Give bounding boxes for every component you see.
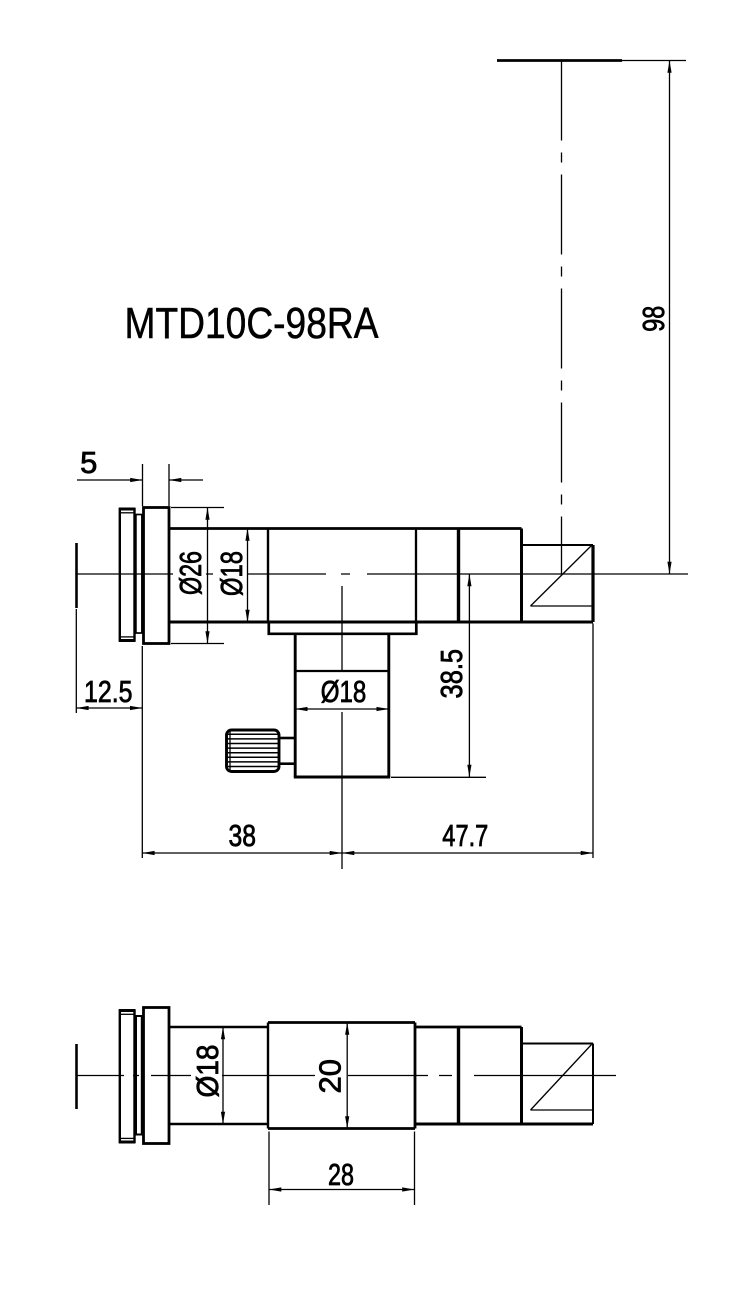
- svg-text:5: 5: [80, 445, 97, 480]
- svg-text:Ø18: Ø18: [321, 674, 367, 709]
- svg-text:47.7: 47.7: [442, 818, 488, 853]
- svg-text:20: 20: [313, 1059, 348, 1093]
- svg-text:28: 28: [328, 1157, 354, 1192]
- svg-text:98: 98: [636, 306, 671, 332]
- svg-text:Ø26: Ø26: [173, 551, 208, 595]
- svg-text:Ø18: Ø18: [214, 551, 249, 596]
- svg-text:38: 38: [228, 818, 256, 853]
- svg-text:MTD10C-98RA: MTD10C-98RA: [125, 299, 380, 348]
- svg-text:12.5: 12.5: [84, 674, 133, 709]
- svg-text:38.5: 38.5: [434, 649, 469, 699]
- svg-text:Ø18: Ø18: [190, 1045, 225, 1098]
